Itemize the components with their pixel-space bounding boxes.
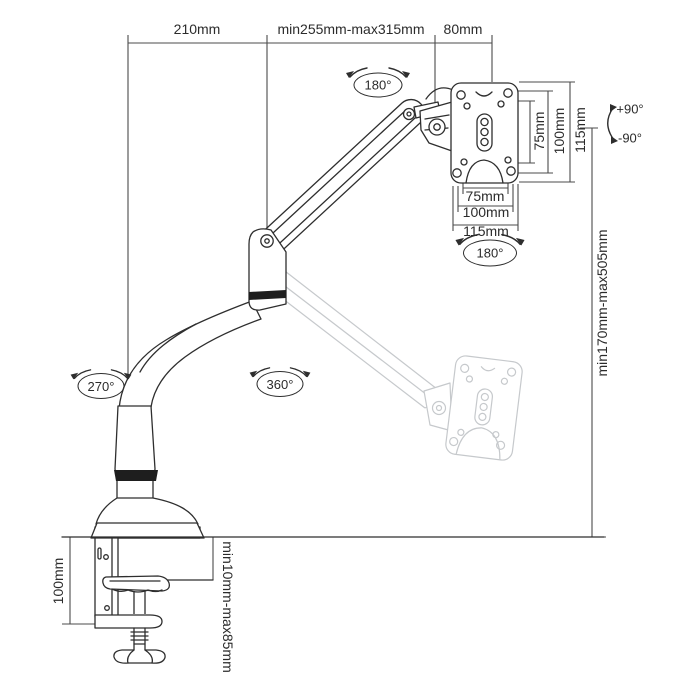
vesa-plate — [451, 83, 518, 183]
rotation-elbow-value: 360° — [267, 378, 294, 391]
dim-extension-range: min255mm-max315mm — [277, 22, 424, 36]
head-hinge — [404, 88, 454, 151]
monitor-arm-dimension-diagram: 210mm min255mm-max315mm 80mm 75mm 100mm … — [0, 0, 700, 700]
arm-column — [115, 406, 155, 500]
rotation-badge-elbow: 360° — [257, 371, 304, 397]
dim-vesa-100-vertical: 100mm — [552, 108, 566, 155]
dimension-line-clamp-height — [62, 537, 100, 624]
base-pedestal — [96, 498, 198, 524]
arm-lower-neck — [119, 301, 261, 411]
dimension-line-desk-thickness — [180, 537, 213, 580]
ghost-vesa-plate — [445, 355, 524, 461]
arm-base-column — [91, 301, 261, 538]
rotation-badge-head-top: 180° — [354, 73, 403, 98]
ghost-arm-position — [257, 261, 523, 461]
dim-desk-thickness-range: min10mm-max85mm — [221, 541, 235, 672]
dim-vesa-115-vertical: 115mm — [573, 107, 587, 153]
dim-head-offset: 80mm — [444, 22, 483, 36]
dim-vesa-75-vertical: 75mm — [532, 112, 546, 151]
dim-base-to-elbow: 210mm — [174, 22, 221, 36]
tilt-down-label: -90° — [618, 131, 642, 146]
arm-upper-segment — [249, 100, 424, 311]
hinge-bolt — [429, 119, 445, 135]
desk-clamp — [95, 527, 200, 663]
tilt-up-label: +90° — [616, 102, 643, 117]
base-plate — [91, 523, 204, 538]
desk-surface-line — [62, 537, 604, 580]
dim-vesa-100-horizontal: 100mm — [463, 205, 510, 219]
dim-vesa-115-horizontal: 115mm — [463, 224, 509, 238]
rotation-base-value: 270° — [88, 380, 115, 393]
dim-height-range: min170mm-max505mm — [595, 229, 609, 376]
rotation-badge-head-bottom: 180° — [463, 240, 517, 267]
column-rotation-collar — [114, 470, 158, 481]
rotation-head-bottom-value: 180° — [477, 247, 504, 260]
arm-cap-screw — [404, 109, 415, 120]
dim-vesa-75-horizontal: 75mm — [466, 189, 505, 203]
dim-clamp-height: 100mm — [51, 558, 65, 605]
rotation-head-top-value: 180° — [365, 79, 392, 92]
rotation-badge-base: 270° — [78, 373, 125, 399]
